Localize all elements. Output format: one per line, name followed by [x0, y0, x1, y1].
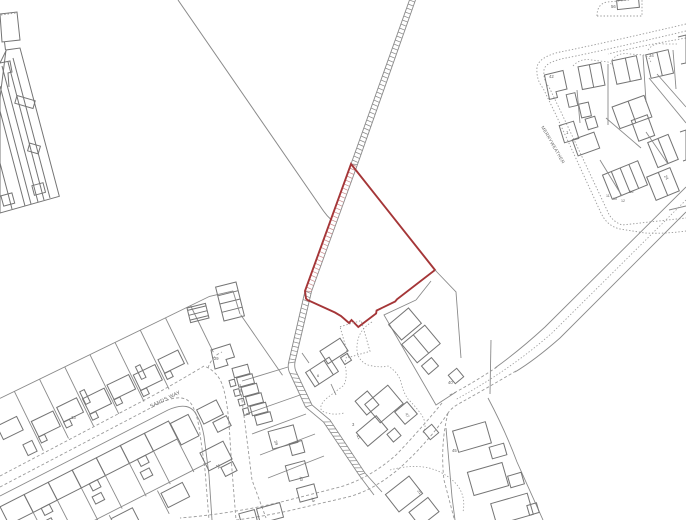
svg-text:45: 45	[452, 448, 457, 453]
svg-text:10: 10	[613, 197, 617, 201]
svg-text:29: 29	[214, 356, 219, 361]
svg-text:56: 56	[611, 4, 616, 9]
svg-text:12: 12	[621, 199, 625, 203]
svg-text:16: 16	[629, 189, 634, 194]
svg-text:42: 42	[549, 74, 554, 79]
svg-text:34: 34	[649, 53, 654, 58]
svg-text:40: 40	[448, 380, 453, 385]
svg-text:11: 11	[606, 194, 610, 198]
svg-text:13: 13	[71, 415, 76, 420]
